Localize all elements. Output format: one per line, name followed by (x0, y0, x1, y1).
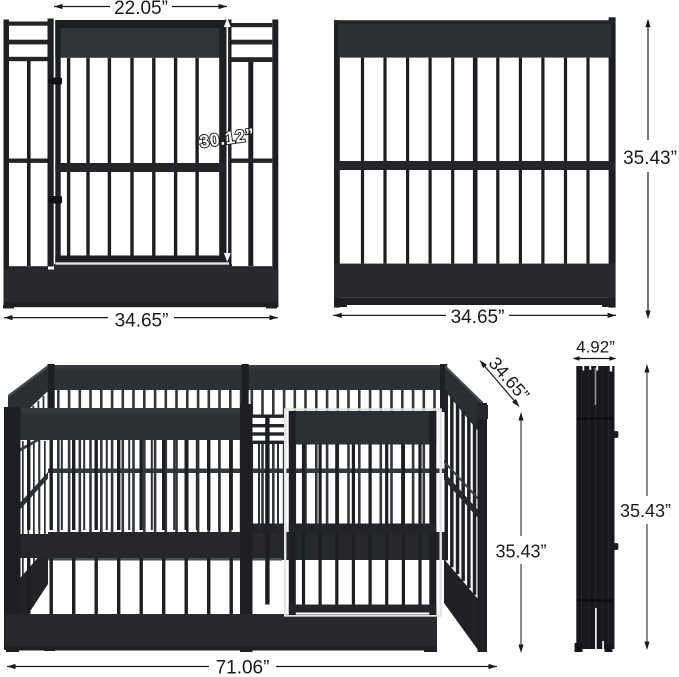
svg-text:4.92”: 4.92” (576, 338, 615, 357)
svg-text:34.65”: 34.65” (451, 307, 505, 328)
svg-text:34.65”: 34.65” (115, 311, 169, 332)
svg-text:71.06”: 71.06” (216, 658, 270, 677)
svg-text:34.65”: 34.65” (485, 353, 534, 405)
svg-text:35.43”: 35.43” (495, 542, 546, 562)
svg-text:22.05”: 22.05” (114, 0, 168, 19)
svg-text:35.43”: 35.43” (620, 501, 671, 521)
svg-text:30.12”: 30.12” (198, 124, 256, 152)
svg-text:35.43”: 35.43” (623, 148, 677, 169)
